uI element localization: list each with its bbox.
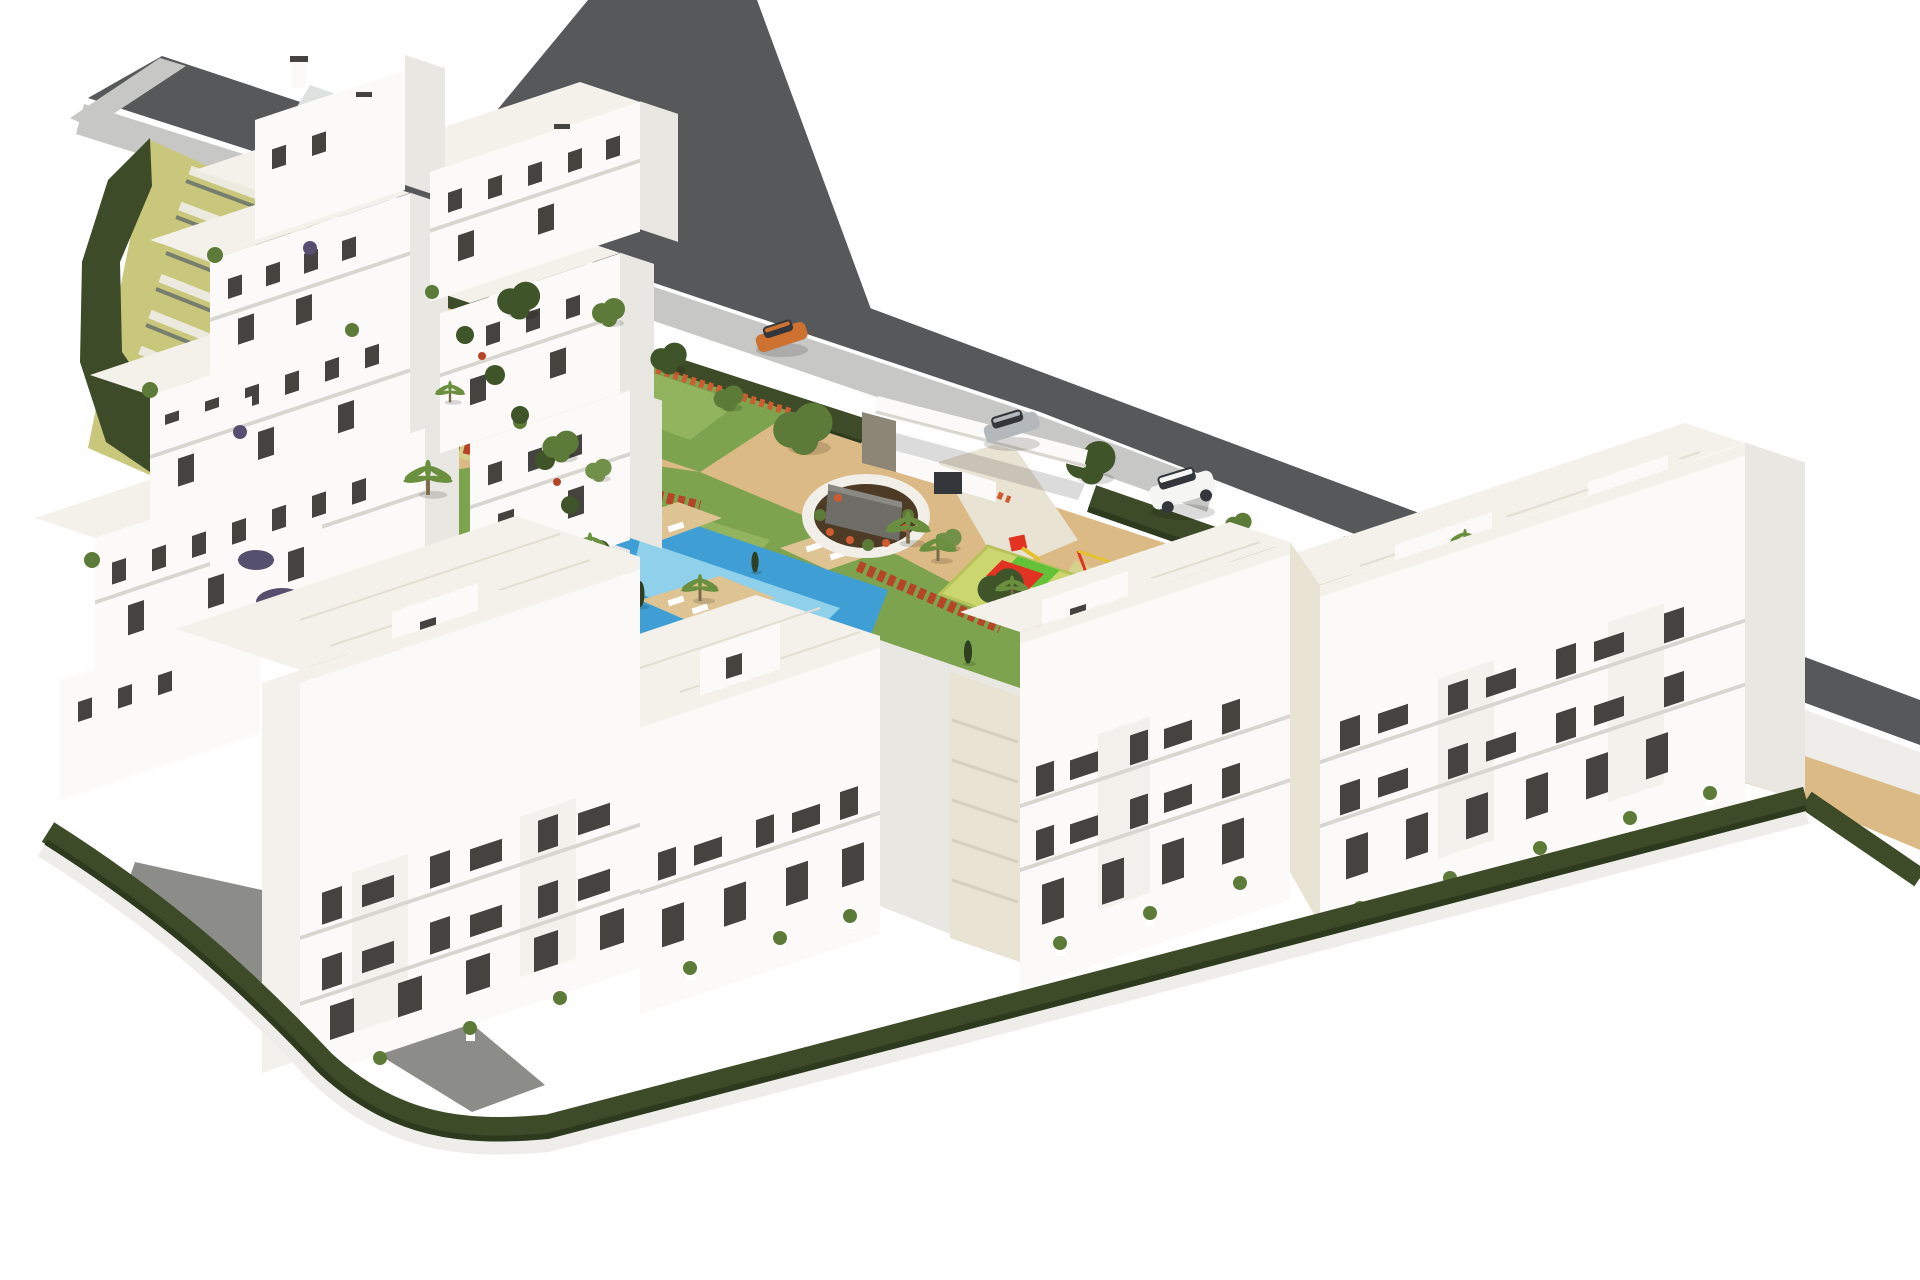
gate-doorway bbox=[934, 472, 962, 494]
stair-gap-bc bbox=[1290, 542, 1320, 925]
aerial-render: Aerial 3D architectural rendering of a w… bbox=[0, 0, 1920, 1280]
gate-pillar bbox=[862, 412, 896, 472]
render-canvas: Aerial 3D architectural rendering of a w… bbox=[0, 0, 1920, 1280]
stair-gap-ab bbox=[950, 672, 1020, 962]
